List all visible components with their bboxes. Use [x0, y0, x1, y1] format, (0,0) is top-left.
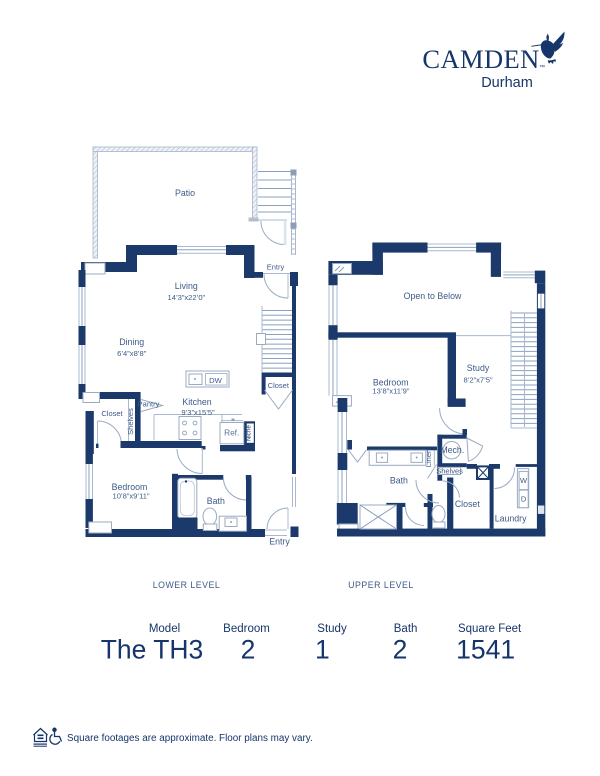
svg-text:10’8”x9’11”: 10’8”x9’11”: [112, 492, 149, 501]
svg-text:Durham: Durham: [481, 75, 533, 91]
svg-text:14’3”x22’0”: 14’3”x22’0”: [168, 293, 206, 302]
svg-text:Closet: Closet: [455, 499, 480, 509]
svg-text:Laundry: Laundry: [495, 514, 527, 524]
svg-text:Entry: Entry: [269, 537, 290, 547]
svg-text:Square footages are approximat: Square footages are approximate. Floor p…: [67, 733, 313, 744]
svg-text:Kitchen: Kitchen: [182, 397, 211, 407]
svg-text:Shelves: Shelves: [436, 466, 463, 475]
svg-text:LOWER LEVEL: LOWER LEVEL: [153, 580, 221, 590]
svg-text:Bedroom: Bedroom: [223, 623, 270, 635]
svg-text:Square Feet: Square Feet: [458, 623, 522, 635]
svg-text:Linen: Linen: [424, 449, 433, 467]
svg-text:13’8”x11’9”: 13’8”x11’9”: [372, 386, 409, 395]
svg-text:Ref.: Ref.: [224, 428, 239, 438]
svg-text:9’3”x15’5”: 9’3”x15’5”: [181, 408, 215, 417]
svg-text:CAMDEN: CAMDEN: [422, 44, 539, 74]
svg-text:Bedroom: Bedroom: [112, 482, 148, 492]
svg-text:™: ™: [539, 64, 545, 71]
svg-text:Mech.: Mech.: [440, 445, 464, 455]
svg-text:Study: Study: [317, 623, 347, 635]
svg-text:1541: 1541: [456, 635, 515, 665]
svg-text:Study: Study: [467, 363, 490, 373]
svg-text:Closet: Closet: [268, 381, 290, 390]
svg-text:Entry: Entry: [267, 263, 285, 272]
svg-text:The TH3: The TH3: [101, 635, 204, 665]
svg-text:W: W: [520, 476, 528, 485]
svg-text:2: 2: [393, 635, 408, 665]
svg-text:Dining: Dining: [119, 337, 144, 347]
svg-text:Bath: Bath: [394, 623, 418, 635]
svg-text:Model: Model: [149, 623, 180, 635]
svg-text:Patio: Patio: [175, 188, 195, 198]
svg-text:Living: Living: [175, 281, 198, 291]
svg-text:6’4”x8’8”: 6’4”x8’8”: [117, 349, 147, 358]
svg-text:Bath: Bath: [207, 496, 225, 506]
svg-text:Open to Below: Open to Below: [404, 291, 462, 301]
svg-text:Closet: Closet: [101, 409, 123, 418]
svg-text:1: 1: [315, 635, 330, 665]
svg-text:UPPER LEVEL: UPPER LEVEL: [348, 580, 414, 590]
svg-text:8’2”x7’5”: 8’2”x7’5”: [463, 376, 493, 385]
svg-text:Bath: Bath: [390, 476, 408, 486]
svg-text:2: 2: [241, 635, 256, 665]
svg-text:DW: DW: [209, 376, 222, 385]
svg-text:Pantry: Pantry: [138, 400, 160, 409]
svg-text:Niche: Niche: [246, 425, 253, 442]
svg-text:Shelves: Shelves: [126, 408, 135, 435]
svg-text:D: D: [521, 495, 527, 504]
